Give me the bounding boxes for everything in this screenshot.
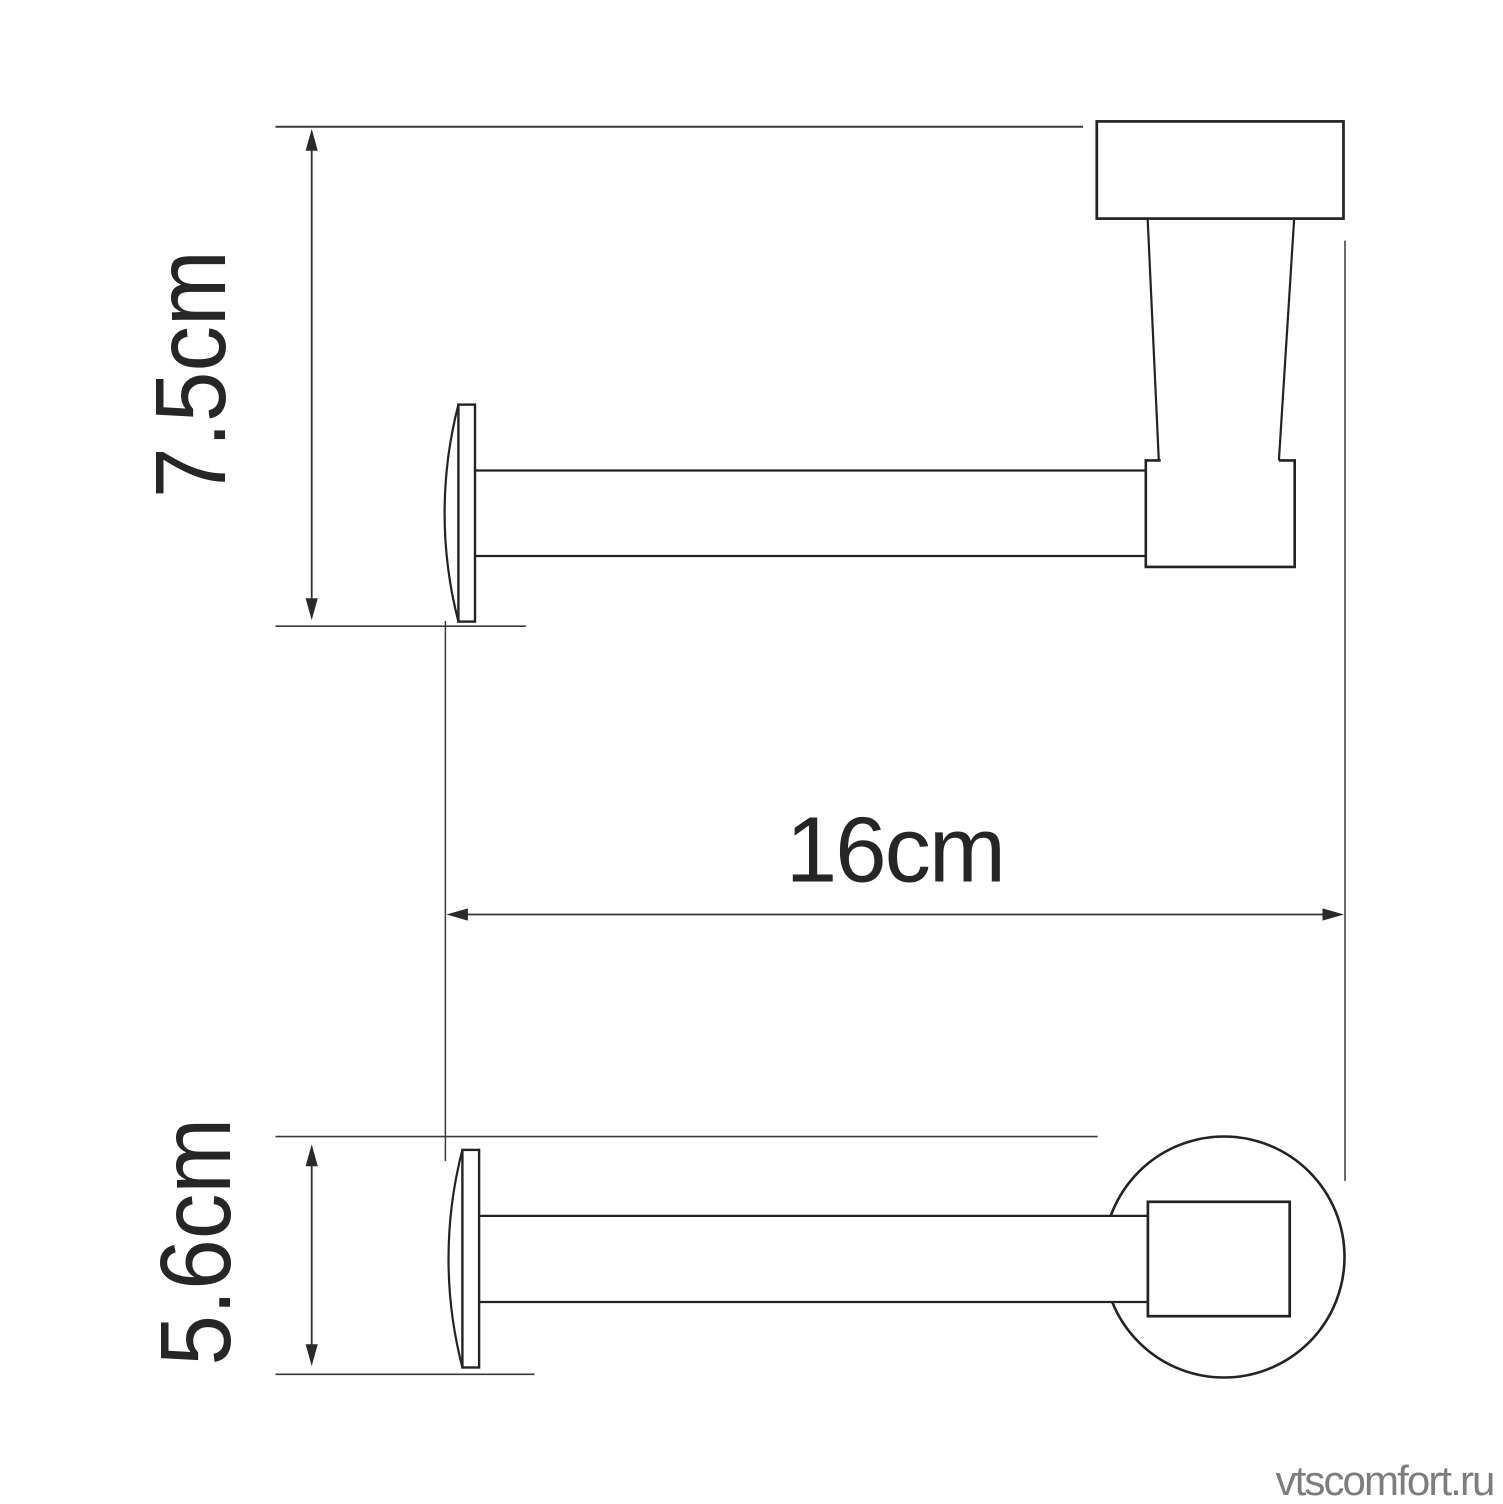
svg-text:16cm: 16cm: [786, 798, 1004, 902]
svg-text:5.6cm: 5.6cm: [140, 1118, 252, 1366]
svg-text:vtscomfort.ru: vtscomfort.ru: [1275, 1457, 1493, 1504]
svg-text:7.5cm: 7.5cm: [135, 250, 247, 498]
